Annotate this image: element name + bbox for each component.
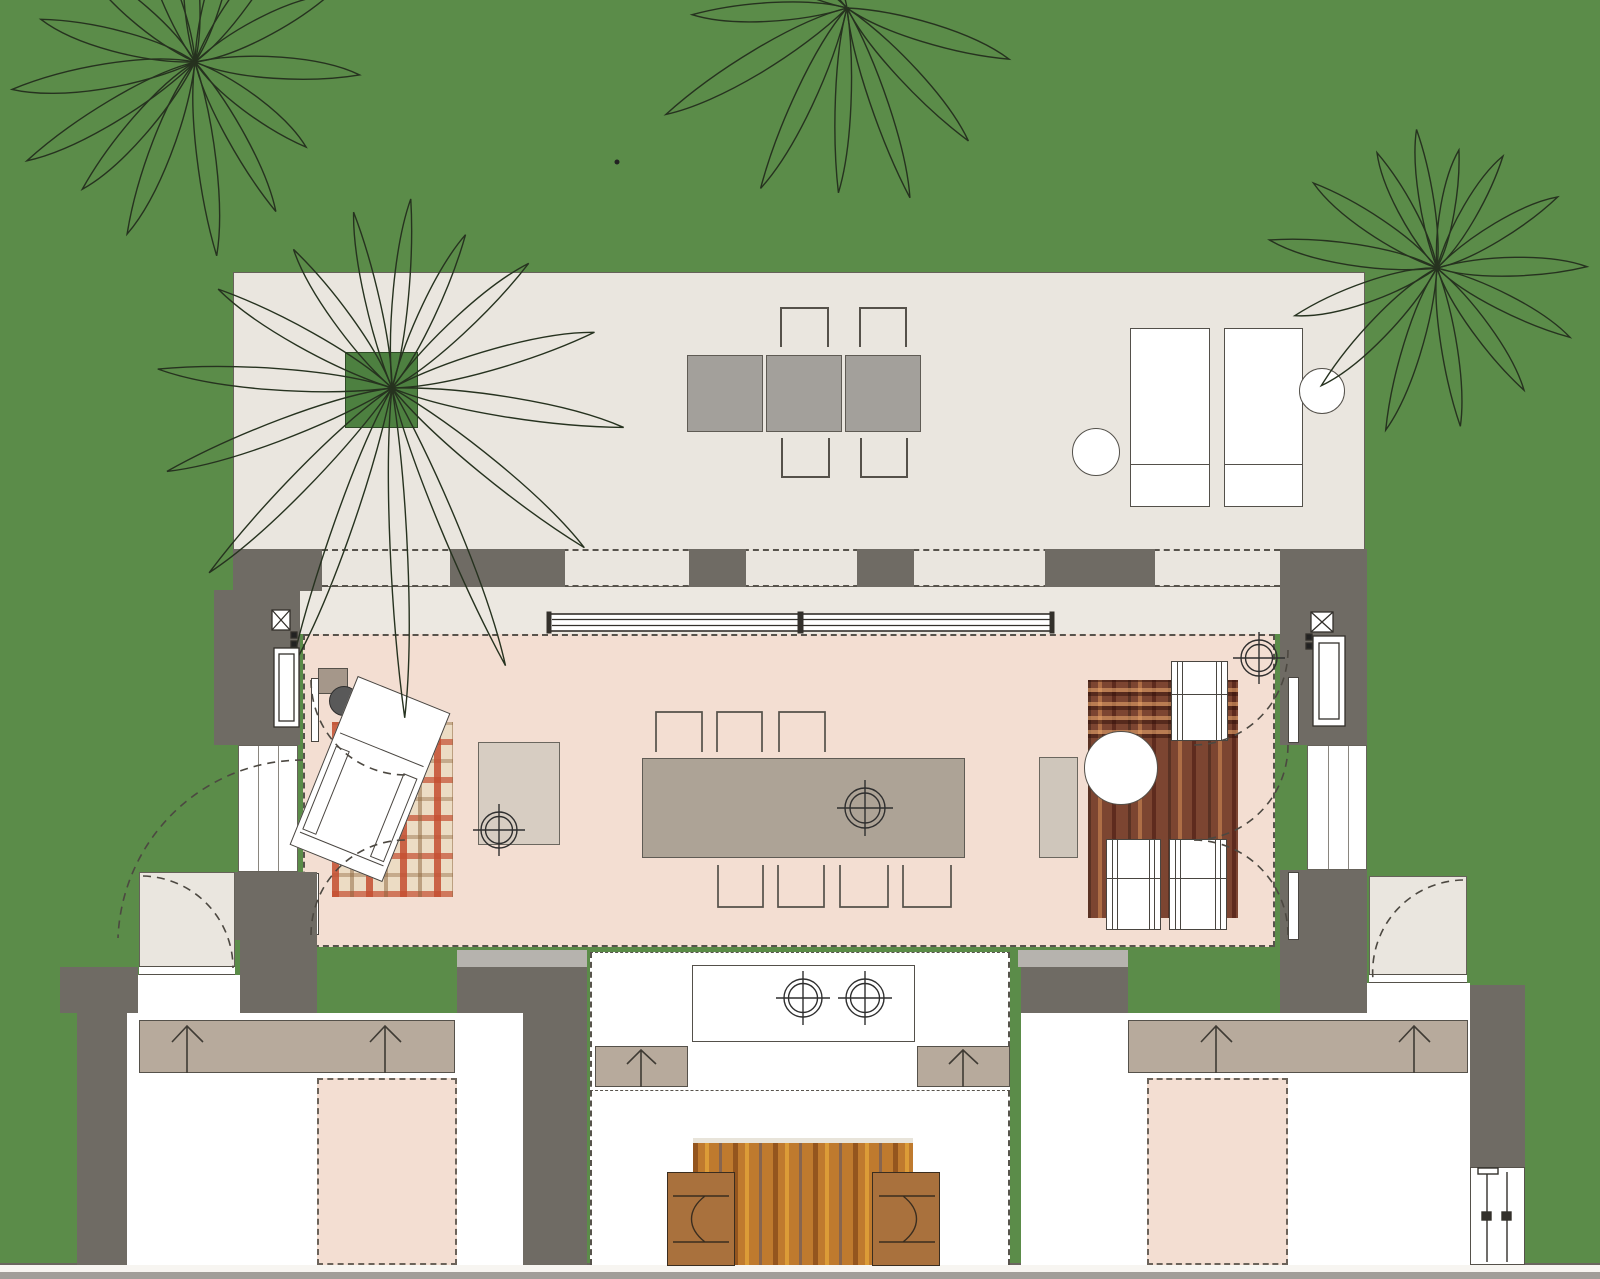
round-lounge-table (1084, 731, 1158, 805)
palm-leaf (38, 9, 198, 74)
palm-leaf (692, 0, 848, 24)
armchair-brown (667, 1172, 735, 1266)
site-dot (615, 160, 620, 165)
wall-west-bedroom-side (77, 1013, 127, 1265)
window-pane-line (258, 746, 259, 871)
palm-leaf (76, 0, 201, 71)
palm-top-left (10, 0, 360, 257)
column-3 (689, 549, 746, 587)
palm-leaf (830, 8, 856, 194)
palm-leaf (1431, 262, 1531, 395)
palm-leaf (186, 0, 297, 67)
window-opening-west (238, 745, 298, 872)
seat-line (1172, 694, 1227, 695)
armrest (1216, 662, 1222, 740)
palm-leaf (1429, 149, 1466, 270)
bedroom-west-window-gap (138, 975, 240, 1013)
palm-leaf (187, 61, 226, 257)
palm-leaf (1433, 259, 1574, 345)
palm-leaf (190, 54, 312, 155)
column-4 (857, 549, 914, 587)
palm-leaf (1409, 128, 1443, 269)
patio-west (139, 872, 235, 970)
sliding-door-east (1470, 1167, 1525, 1265)
floor-plan-canvas (0, 0, 1600, 1279)
palm-leaf (188, 57, 283, 215)
wall-court-west-side (523, 1013, 587, 1265)
palm-leaf (840, 5, 918, 201)
armchair-brown (872, 1172, 940, 1266)
door-leaf (1288, 872, 1299, 940)
armchair-white (1169, 839, 1227, 930)
patio-east-window (1369, 974, 1467, 983)
kitchen-island (692, 965, 915, 1042)
palm-leaf (1370, 149, 1443, 272)
palm-leaf (75, 56, 204, 196)
chaise-headrest-line (340, 732, 424, 767)
armchair-white (1106, 839, 1161, 930)
sun-lounger (1224, 328, 1303, 507)
wall-east-bedroom-side (1470, 985, 1525, 1167)
armchair-white (1171, 661, 1228, 741)
wall-court-west-top (457, 967, 587, 1013)
palm-leaf (1308, 175, 1442, 276)
window-opening-east (1307, 745, 1367, 870)
cabinet-right (917, 1046, 1010, 1087)
bedroom-east-window-gap (1367, 983, 1470, 1013)
palm-leaf (1432, 189, 1562, 274)
column-west-corner (233, 549, 322, 591)
coffee-table (478, 742, 560, 845)
palm-leaf (194, 50, 360, 86)
armrest (1177, 662, 1183, 740)
wall-court-east-top (1021, 967, 1128, 1013)
palm-leaf (785, 0, 852, 12)
palm-leaf (1430, 267, 1468, 428)
patio-west-window (139, 966, 235, 975)
palm-leaf (1377, 265, 1447, 433)
sun-lounger (1130, 328, 1210, 507)
door-leaf (1288, 677, 1299, 743)
armrest (1149, 840, 1155, 929)
palm-leaf (181, 0, 202, 62)
window-pane-line (278, 746, 279, 871)
veranda-floor (300, 587, 1285, 634)
threshold-step-east (1018, 950, 1128, 967)
door-leaf (311, 678, 319, 742)
wall-west-bedroom-top (60, 967, 138, 1013)
bed-east (1147, 1078, 1288, 1265)
window-pane-line (1348, 746, 1349, 869)
bed-west (317, 1078, 457, 1265)
court-dashed-line (590, 1090, 1010, 1091)
armrest (1215, 840, 1221, 929)
lounger-fold-line (1225, 464, 1302, 465)
dining-table (642, 758, 965, 858)
console-bench (1039, 757, 1078, 858)
armrest (1175, 840, 1181, 929)
patio-east (1369, 876, 1467, 978)
palm-leaf (117, 58, 206, 238)
round-side-table (1072, 428, 1120, 476)
tree-planter (345, 352, 418, 428)
palm-leaf (751, 4, 857, 193)
palm-leaf (21, 54, 201, 170)
outdoor-table-module (766, 355, 842, 432)
lounger-fold-line (1131, 464, 1209, 465)
window-pane-line (1328, 746, 1329, 869)
palm-leaf (719, 0, 851, 17)
palm-leaf (844, 0, 1012, 69)
column-5 (1045, 549, 1155, 587)
wall-patio-west (240, 872, 317, 1013)
wardrobe-east (1128, 1020, 1468, 1073)
outdoor-table-module (687, 355, 763, 432)
palm-leaf (841, 1, 975, 147)
seat-line (1107, 878, 1160, 879)
site-edge-wall (0, 1272, 1600, 1279)
palm-leaf (190, 0, 334, 70)
palm-leaf (1429, 152, 1510, 272)
cabinet-left (595, 1046, 688, 1087)
palm-leaf (129, 0, 203, 66)
palm-leaf (660, 0, 853, 124)
palm-leaf (10, 51, 197, 101)
seat-line (1170, 878, 1226, 879)
wall-west-upper (214, 590, 300, 745)
armrest (1112, 840, 1118, 929)
column-2 (450, 549, 565, 587)
palm-top-center (660, 0, 1012, 201)
palm-leaf (1437, 257, 1587, 276)
outdoor-table-module (845, 355, 921, 432)
wardrobe-west (139, 1020, 455, 1073)
round-side-table (1299, 368, 1345, 414)
palm-leaf (186, 0, 247, 64)
threshold-step-west (457, 950, 587, 967)
